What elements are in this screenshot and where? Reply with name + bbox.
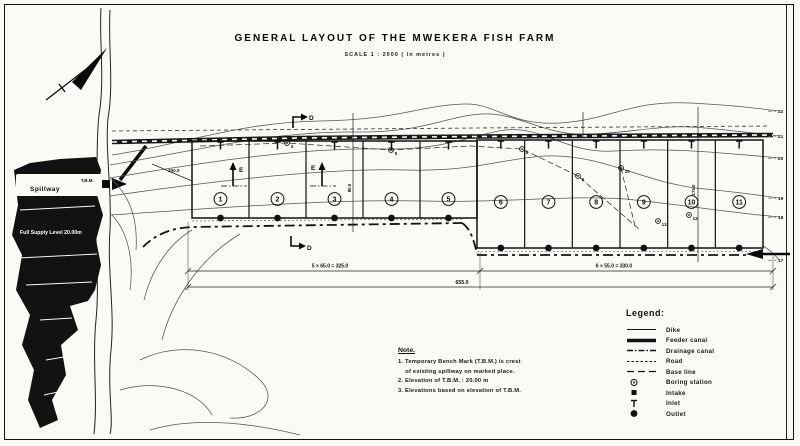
dim-mid-length: 80.0 [347,183,352,192]
boring-station-icon [657,220,659,222]
legend-item-label: Feeder canal [666,337,707,344]
boring-station-icon [577,175,579,177]
legend-item-label: Boring station [666,379,712,386]
legend-item-label: Base line [666,369,696,376]
outlet-icon [445,215,452,222]
legend-item-label: Intake [666,390,686,397]
pond-number: 4 [390,196,394,203]
contour-elevation-label: 22 [778,109,784,115]
pond-number: 5 [447,196,451,203]
pond-number: 1 [219,196,223,203]
legend-item-label: Drainage canal [666,348,714,355]
legend-item: Outlet [626,409,776,420]
pond-number: 6 [499,199,503,206]
outlet-icon [640,245,647,252]
boring-station-icon [390,149,392,151]
outlet-icon [388,215,395,222]
outlet-icon [736,245,743,252]
outlet-icon [274,215,281,222]
tbm-label: T.B.M. [81,178,94,183]
pond-number: 9 [642,199,646,206]
note-line: 1. Temporary Bench Mark (T.B.M.) is cres… [398,358,608,368]
section-marker-label: D [309,115,314,122]
notes: Note. 1. Temporary Bench Mark (T.B.M.) i… [398,347,608,396]
legend-symbol-outlet [626,409,660,418]
pond-number: 2 [276,196,280,203]
pond-number: 10 [688,199,696,206]
contour-elevation-label: 17 [778,258,784,264]
legend-header: Legend: [626,308,776,318]
contour-elevation-label: 20 [778,156,784,162]
dim-left-length: 100.0 [168,168,180,173]
pond-number: 11 [735,199,743,206]
boring-station-number: 10 [625,169,631,174]
full-supply-level-label: Full Supply Level 20.00m [20,230,82,236]
legend-item-label: Inlet [666,400,680,407]
drawing-scale: SCALE 1 : 2000 ( in metres ) [155,52,635,58]
dim-total: 655.0 [456,280,469,286]
section-marker-label: E [239,167,244,174]
section-marker-label: D [307,245,312,252]
dim-group1: 5 × 65.0 = 325.0 [312,264,349,270]
boring-station-icon [620,167,622,169]
boring-station-number: 13 [662,222,668,227]
boring-station-icon [521,148,523,150]
note-line: 2. Elevation of T.B.M. : 20.00 m [398,377,608,387]
drainage-canal [143,223,748,255]
drawing-sheet: 1234567891011 3589101213 222120191817 5 … [0,0,800,446]
boring-station-icon [286,142,288,144]
section-marker-label: E [311,165,316,172]
note-line: 3. Elevations based on elevation of T.B.… [398,387,608,397]
dimension-extensions [188,222,773,290]
legend-item-label: Outlet [666,411,686,418]
outlet-icon [688,245,695,252]
legend-item-label: Dike [666,327,680,334]
notes-header: Note. [398,347,608,354]
boring-station-number: 12 [693,216,699,221]
north-arrow-icon [46,48,107,100]
outlet-icon [593,245,600,252]
outlet-icon [217,215,224,222]
drainage-outfall-arrow [746,249,790,259]
drawing-title: GENERAL LAYOUT OF THE MWEKERA FISH FARM [155,33,635,44]
pond-number: 3 [333,196,337,203]
pond-number: 7 [547,199,551,206]
dim-right-length: 175.0 [691,184,696,196]
pond-group-1 [192,141,477,218]
contour-elevation-label: 18 [778,215,784,221]
boring-station-icon [688,214,690,216]
grid-lines [353,107,698,262]
outlet-icon [331,215,338,222]
contour-elevation-label: 21 [778,134,784,140]
outlet-icon [497,245,504,252]
dim-group2: 6 × 55.0 = 330.0 [596,264,633,270]
legend-item-label: Road [666,358,683,365]
boring-station-number: 5 [395,151,398,156]
boring-station-number: 8 [526,150,529,155]
section-markers [221,114,336,250]
outlet-icon [545,245,552,252]
contour-elevation-label: 19 [778,196,784,202]
reservoir-area [12,157,108,428]
note-line: of existing spillway on marked place. [398,368,608,378]
pond-number: 8 [594,199,598,206]
spillway-label: Spillway [30,186,60,193]
boring-station-number: 3 [291,144,294,149]
legend: Legend: DikeFeeder canalDrainage canalRo… [626,308,776,420]
